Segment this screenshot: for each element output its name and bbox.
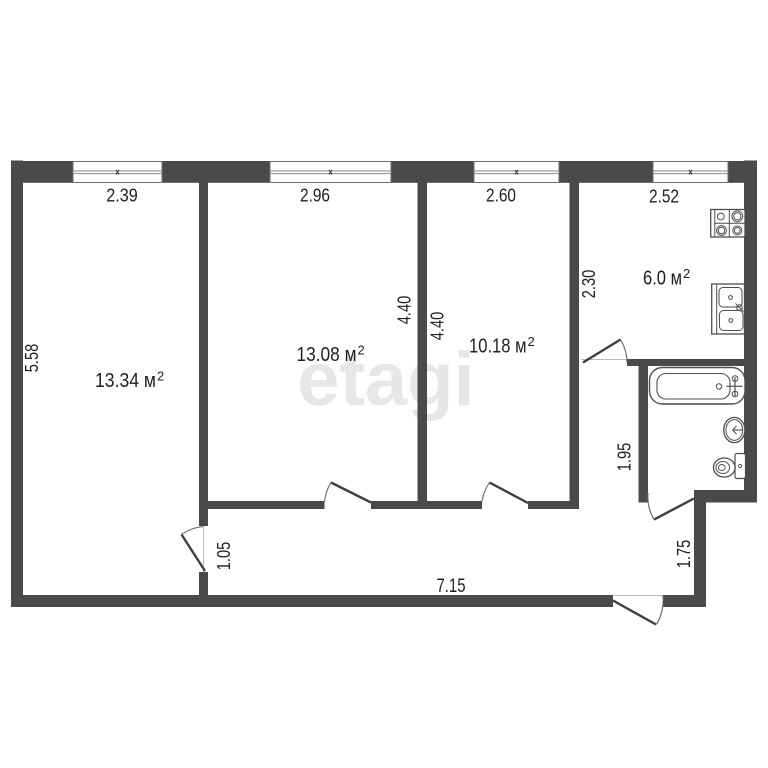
svg-text:2.60: 2.60	[486, 186, 516, 206]
svg-text:2: 2	[528, 334, 535, 349]
svg-text:13.08 м: 13.08 м	[297, 343, 357, 366]
svg-text:2: 2	[358, 343, 365, 358]
svg-text:5.58: 5.58	[22, 344, 42, 373]
svg-text:13.34 м: 13.34 м	[95, 369, 156, 392]
svg-text:2.30: 2.30	[579, 270, 599, 299]
svg-text:4.40: 4.40	[395, 296, 415, 325]
svg-text:10.18 м: 10.18 м	[469, 335, 527, 358]
svg-text:1.95: 1.95	[615, 443, 635, 472]
svg-text:7.15: 7.15	[437, 575, 466, 597]
svg-text:6.0 м: 6.0 м	[643, 267, 682, 290]
svg-text:2: 2	[157, 369, 164, 384]
svg-text:1.05: 1.05	[214, 542, 234, 571]
svg-text:2.39: 2.39	[106, 186, 138, 206]
svg-text:1.75: 1.75	[674, 540, 694, 569]
svg-text:2.52: 2.52	[649, 187, 679, 207]
svg-text:2: 2	[683, 266, 690, 281]
svg-text:2.96: 2.96	[300, 186, 330, 206]
svg-text:4.40: 4.40	[428, 312, 448, 341]
